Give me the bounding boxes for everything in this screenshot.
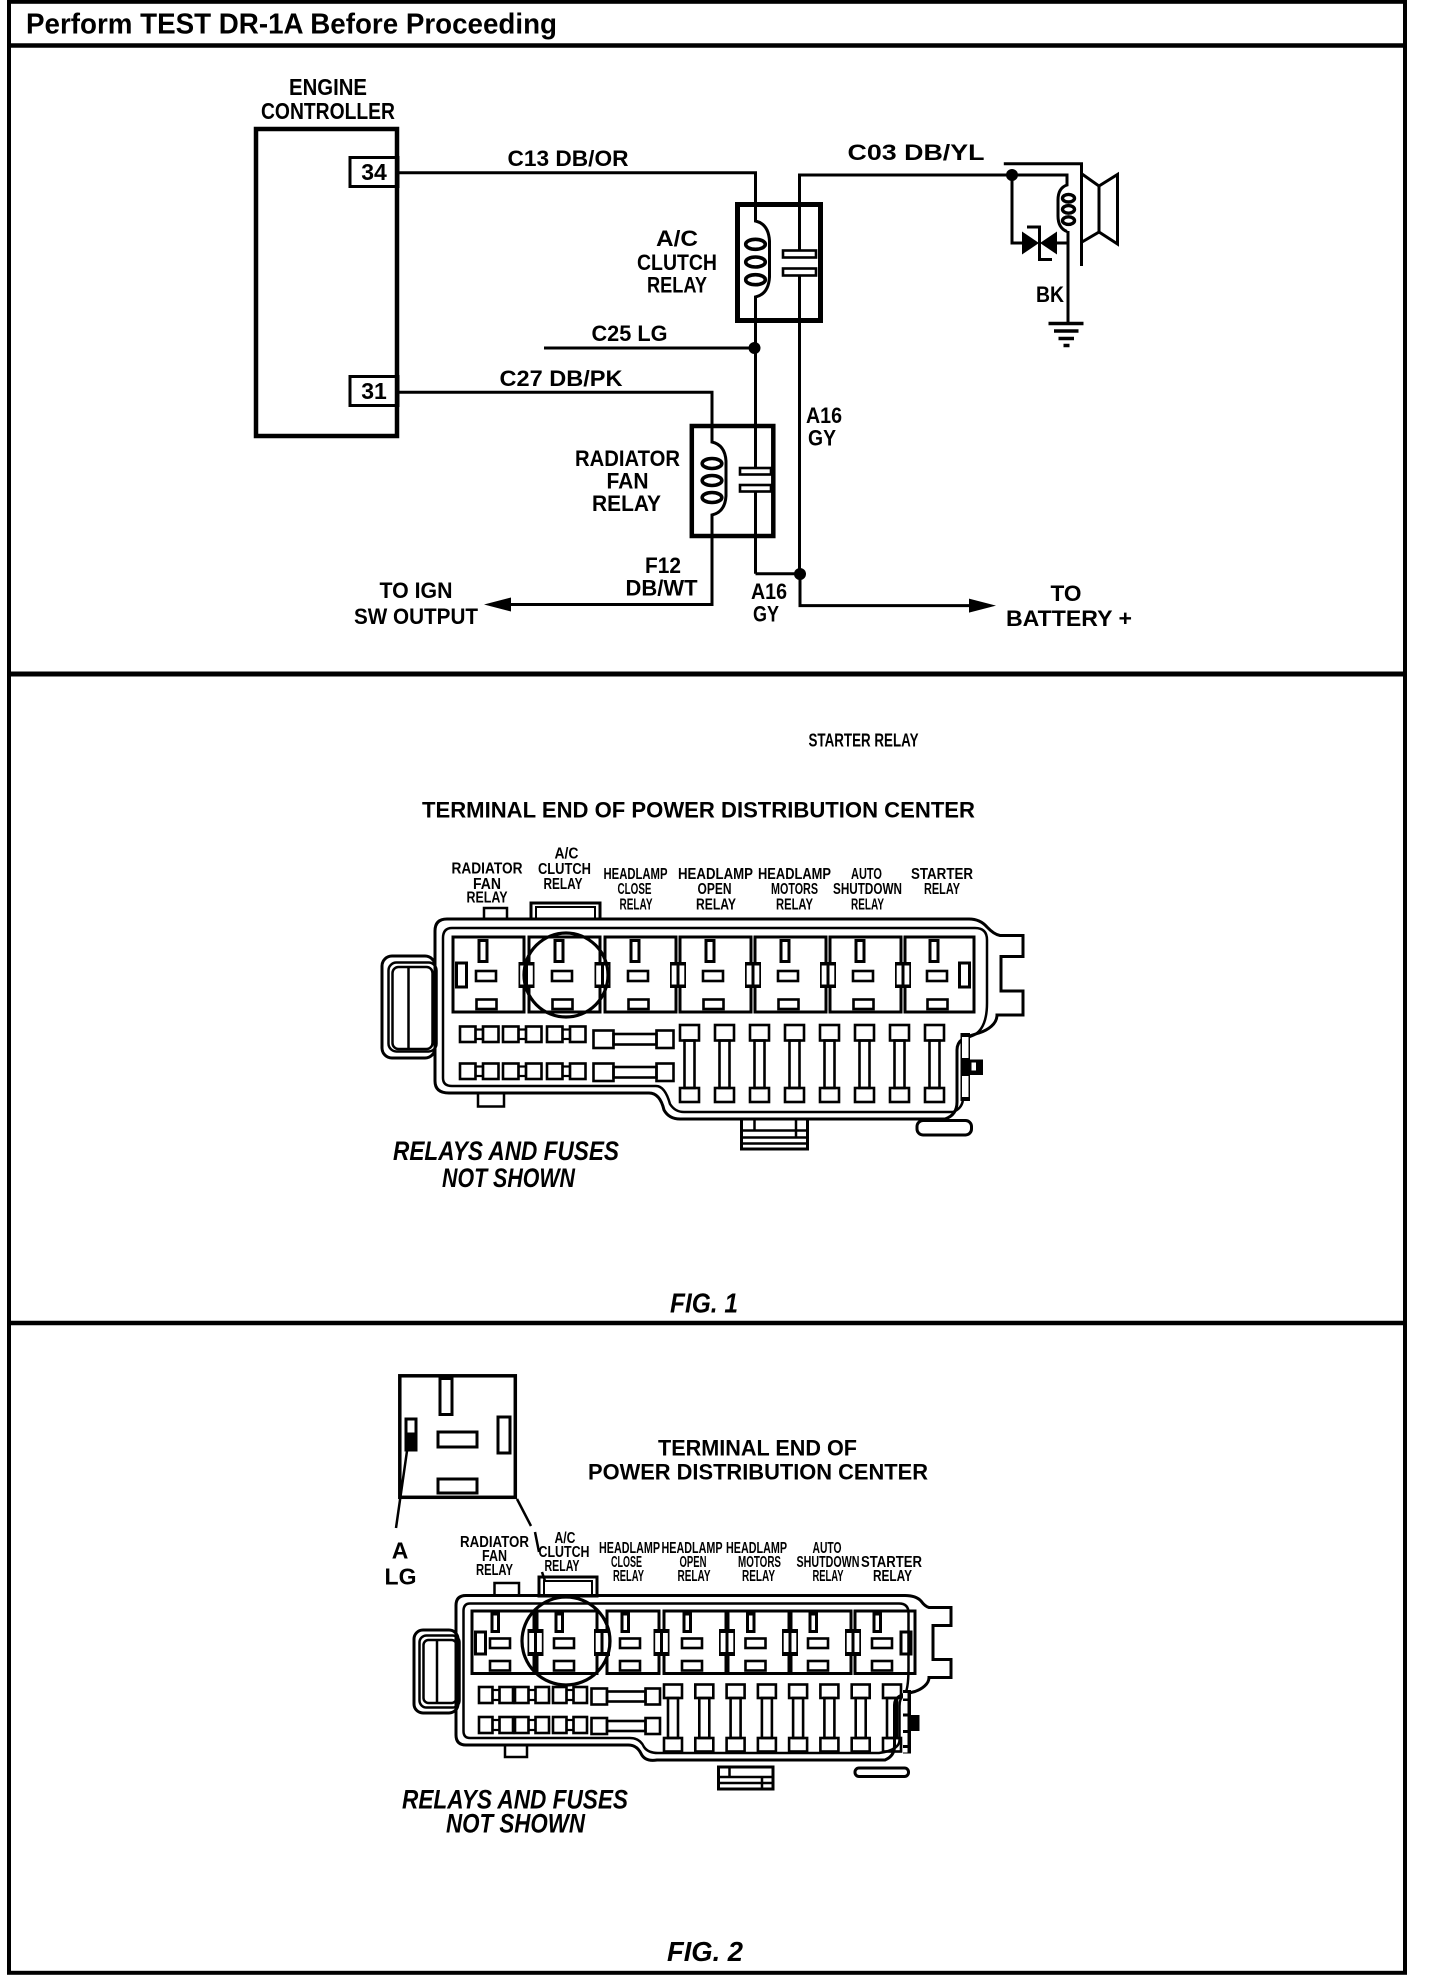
- svg-text:RELAY: RELAY: [873, 1568, 912, 1585]
- svg-text:RELAY: RELAY: [467, 890, 508, 907]
- svg-text:RELAY: RELAY: [647, 273, 707, 298]
- svg-text:RADIATOR: RADIATOR: [575, 446, 680, 471]
- svg-text:C03 DB/YL: C03 DB/YL: [848, 140, 985, 165]
- svg-text:CLOSE: CLOSE: [618, 881, 652, 898]
- svg-text:RELAY: RELAY: [592, 491, 661, 516]
- svg-text:RELAY: RELAY: [544, 876, 583, 893]
- svg-text:FAN: FAN: [607, 469, 649, 494]
- svg-text:CLUTCH: CLUTCH: [637, 250, 717, 275]
- svg-text:A16: A16: [806, 403, 842, 428]
- svg-text:FIG. 1: FIG. 1: [670, 1288, 738, 1319]
- svg-text:GY: GY: [753, 602, 779, 627]
- svg-text:NOT SHOWN: NOT SHOWN: [442, 1163, 576, 1193]
- svg-text:RELAY: RELAY: [742, 1568, 775, 1585]
- svg-text:RELAY: RELAY: [613, 1568, 644, 1585]
- svg-text:BATTERY +: BATTERY +: [1006, 606, 1132, 631]
- svg-text:POWER DISTRIBUTION CENTER: POWER DISTRIBUTION CENTER: [588, 1460, 928, 1485]
- svg-text:A/C: A/C: [656, 226, 698, 251]
- svg-text:RELAYS AND FUSES: RELAYS AND FUSES: [393, 1136, 619, 1166]
- svg-text:F12: F12: [645, 553, 681, 578]
- svg-text:RELAY: RELAY: [924, 881, 960, 898]
- svg-text:RELAY: RELAY: [851, 897, 884, 914]
- svg-text:RADIATOR: RADIATOR: [452, 861, 523, 878]
- svg-text:34: 34: [361, 159, 387, 185]
- svg-text:ENGINE: ENGINE: [289, 74, 367, 100]
- svg-text:BK: BK: [1036, 282, 1064, 307]
- svg-text:FIG. 2: FIG. 2: [667, 1936, 743, 1967]
- svg-text:A/C: A/C: [555, 846, 579, 863]
- svg-text:RELAY: RELAY: [776, 897, 813, 914]
- svg-text:GY: GY: [808, 426, 836, 451]
- svg-text:RELAY: RELAY: [813, 1568, 844, 1585]
- svg-text:TO IGN: TO IGN: [380, 578, 453, 603]
- svg-text:TO: TO: [1051, 581, 1082, 606]
- svg-text:A: A: [392, 1538, 409, 1564]
- svg-text:TERMINAL END OF: TERMINAL END OF: [658, 1436, 857, 1461]
- svg-text:OPEN: OPEN: [698, 881, 732, 898]
- svg-text:SHUTDOWN: SHUTDOWN: [833, 881, 902, 898]
- svg-text:MOTORS: MOTORS: [771, 881, 818, 898]
- svg-text:Perform TEST DR-1A Before Proc: Perform TEST DR-1A Before Proceeding: [26, 9, 557, 41]
- svg-text:TERMINAL END OF POWER DISTRIBU: TERMINAL END OF POWER DISTRIBUTION CENTE…: [422, 798, 975, 823]
- svg-text:31: 31: [361, 378, 387, 404]
- svg-text:C13 DB/OR: C13 DB/OR: [508, 146, 629, 171]
- svg-text:C27 DB/PK: C27 DB/PK: [500, 366, 623, 391]
- svg-text:CONTROLLER: CONTROLLER: [261, 98, 395, 124]
- svg-text:DB/WT: DB/WT: [626, 576, 699, 601]
- svg-text:A16: A16: [751, 579, 787, 604]
- svg-text:RELAY: RELAY: [620, 897, 653, 914]
- svg-text:NOT SHOWN: NOT SHOWN: [446, 1809, 586, 1839]
- svg-text:RELAY: RELAY: [678, 1568, 711, 1585]
- svg-text:RELAY: RELAY: [476, 1562, 513, 1579]
- svg-text:SW OUTPUT: SW OUTPUT: [354, 604, 479, 629]
- svg-text:RELAY: RELAY: [545, 1558, 580, 1575]
- svg-text:RELAY: RELAY: [696, 897, 736, 914]
- svg-text:C25 LG: C25 LG: [592, 321, 668, 346]
- svg-text:LG: LG: [385, 1564, 417, 1590]
- svg-text:STARTER RELAY: STARTER RELAY: [809, 731, 919, 751]
